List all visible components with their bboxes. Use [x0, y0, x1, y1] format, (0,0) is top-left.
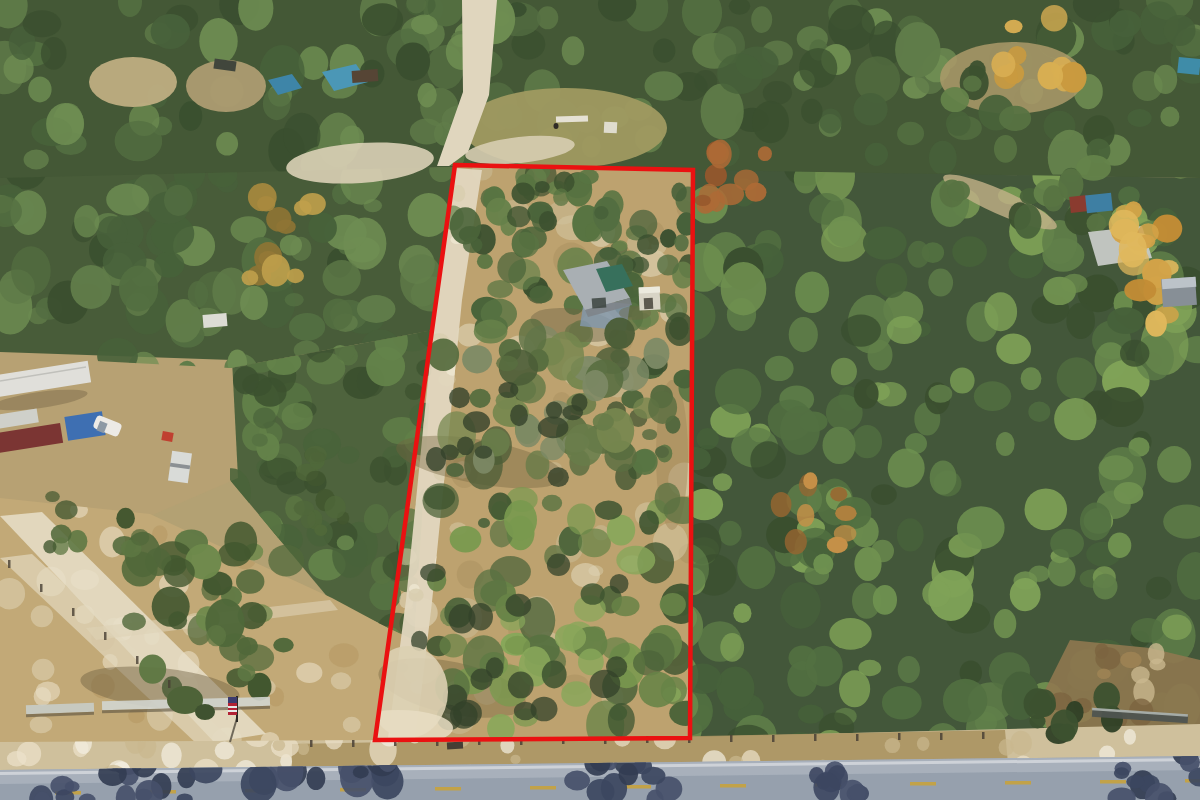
white-table-1: [556, 115, 588, 122]
roadside-object: [447, 742, 463, 750]
person-dot: [554, 123, 559, 129]
aerial-photo: [0, 0, 1200, 800]
bush-2: [655, 446, 669, 458]
red-atv: [161, 431, 173, 442]
clearing-top-left: [89, 57, 177, 107]
blue-roof-building-right: [1085, 193, 1113, 214]
aerial-photo-canvas: [0, 0, 1200, 800]
dark-structure-top: [352, 69, 379, 83]
us-flag-stripes: [228, 703, 237, 715]
us-flag-canton: [228, 697, 237, 703]
house-porch-shadow: [592, 298, 607, 309]
bush-at-flag-2: [195, 704, 215, 720]
shed-door: [644, 298, 654, 309]
teal-roof-far-right: [1177, 57, 1200, 75]
us-flag-stripe-white-2: [228, 710, 237, 712]
small-white-trailer: [202, 313, 227, 328]
bush-1: [446, 463, 464, 477]
shed-roof-edge: [639, 286, 660, 293]
bush-3: [478, 518, 490, 528]
us-flag-stripe-white-1: [228, 706, 237, 708]
white-table-2: [604, 122, 618, 134]
